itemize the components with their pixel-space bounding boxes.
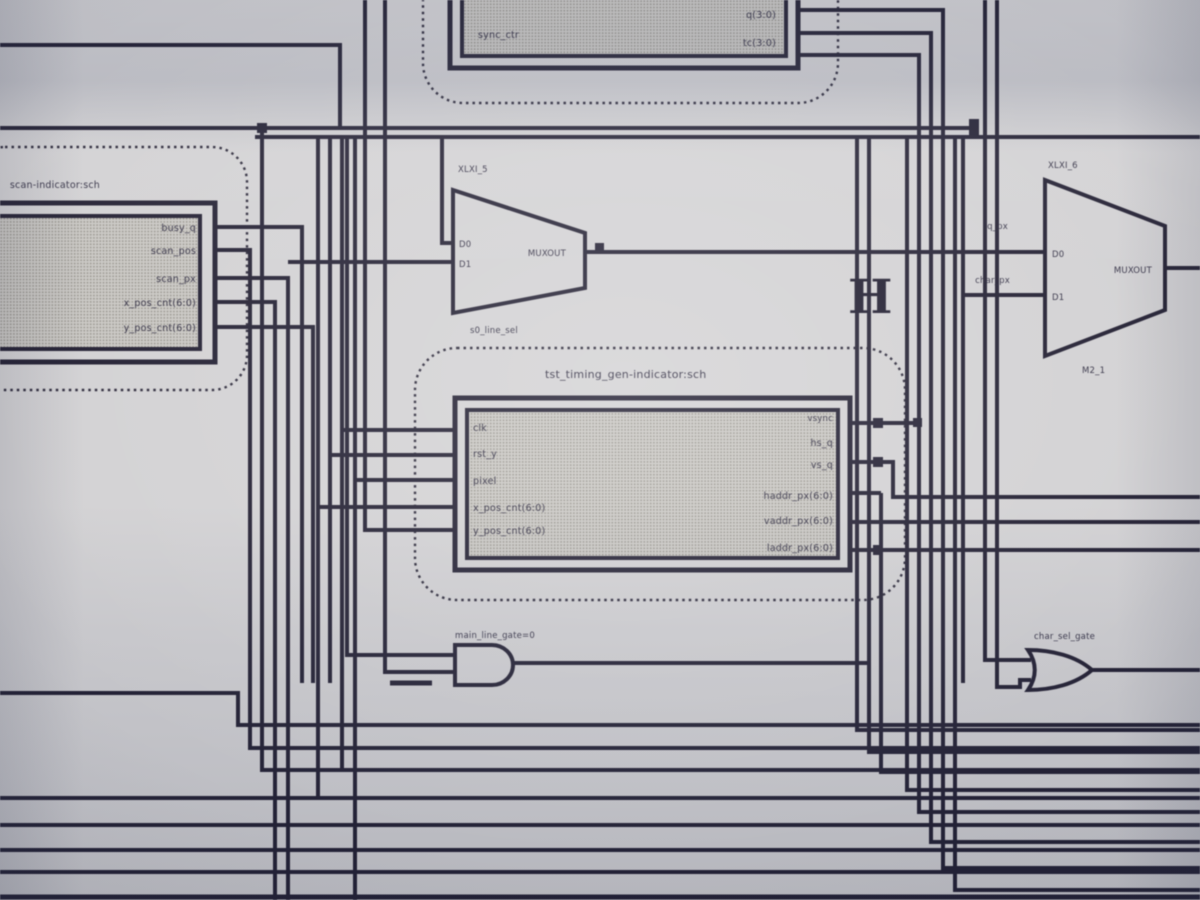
- junction-dot: [913, 418, 922, 427]
- bus-tap-nub: [969, 119, 979, 137]
- wire: [850, 462, 1200, 497]
- top-block-port-label: q(3:0): [746, 10, 776, 21]
- wire: [907, 137, 1200, 790]
- junction-dot: [873, 457, 883, 467]
- junction-dot: [873, 545, 883, 555]
- wire: [985, 0, 1031, 660]
- or-gate-symbol: [1028, 650, 1092, 690]
- bus-tap-nub: [595, 243, 604, 254]
- and-gate-symbol: [455, 645, 513, 685]
- block-body: [462, 0, 786, 56]
- center-block-port-label: laddr_px(6:0): [767, 543, 833, 554]
- center-block-port-label: vsync: [807, 414, 833, 424]
- top-block-port-label: tc(3:0): [743, 38, 776, 49]
- left-block-port-label: busy_q: [161, 223, 196, 234]
- junction-dot: [873, 418, 883, 428]
- mux-a-d0-label: D0: [459, 240, 471, 250]
- center-block-port-label: vaddr_px(6:0): [764, 516, 833, 527]
- left-block-port-label: scan_pos: [151, 246, 196, 257]
- mux-b-type-label: M2_1: [1082, 366, 1105, 376]
- wire: [0, 45, 340, 128]
- mux-b-out-label: MUXOUT: [1114, 266, 1153, 276]
- mux-b: XLXI_6 D0 D1 MUXOUT M2_1 q_px char_px: [975, 161, 1165, 376]
- mux-a: XLXI_5 D0 D1 MUXOUT s0_line_sel: [453, 165, 585, 336]
- left-block-port-label: y_pos_cnt(6:0): [124, 323, 196, 334]
- wire: [0, 693, 1200, 725]
- center-block-port-label: hs_q: [810, 438, 833, 449]
- and-gate-net-label: main_line_gate=0: [455, 631, 535, 641]
- center-block-port-label: rst_y: [473, 449, 497, 460]
- mux-a-instance-label: XLXI_5: [458, 165, 488, 175]
- top-counter-block: sync_ctr q(3:0) tc(3:0): [450, 0, 798, 68]
- mux-b-instance-label: XLXI_6: [1048, 161, 1078, 171]
- center-block-title: tst_timing_gen-indicator:sch: [545, 368, 706, 381]
- photographed-schematic-page: sync_ctr q(3:0) tc(3:0) scan-indicator:s…: [0, 0, 1200, 900]
- mux-b-d0-label: D0: [1052, 250, 1064, 260]
- center-block-port-label: y_pos_cnt(6:0): [473, 526, 545, 537]
- center-block-port-label: pixel: [473, 476, 496, 487]
- left-block-port-label: x_pos_cnt(6:0): [124, 298, 196, 309]
- wire: [997, 0, 1031, 687]
- mux-a-type-label: s0_line_sel: [470, 326, 518, 336]
- center-block-port-label: haddr_px(6:0): [763, 491, 833, 502]
- and-gate: main_line_gate=0: [455, 631, 535, 685]
- center-block-port-label: clk: [473, 423, 487, 434]
- or-gate: char_sel_gate: [1028, 632, 1095, 690]
- wire: [931, 33, 1200, 842]
- mux-b-net0-label: q_px: [987, 222, 1008, 232]
- center-timing-block: tst_timing_gen-indicator:sch clk rst_y p…: [455, 368, 850, 570]
- left-block-title: scan-indicator:sch: [10, 180, 100, 191]
- or-gate-net-label: char_sel_gate: [1034, 632, 1095, 642]
- junction-dot: [257, 123, 267, 133]
- wire: [215, 302, 275, 900]
- mux-a-d1-label: D1: [459, 260, 471, 270]
- wire: [365, 0, 455, 530]
- schematic-drawing: sync_ctr q(3:0) tc(3:0) scan-indicator:s…: [0, 0, 1200, 900]
- sheet-tag-label: H: [848, 270, 892, 325]
- left-block-port-label: scan_px: [156, 274, 196, 285]
- center-block-port-label: x_pos_cnt(6:0): [473, 503, 545, 514]
- center-block-port-label: vs_q: [811, 460, 833, 471]
- top-block-left-label: sync_ctr: [478, 30, 519, 41]
- mux-b-d1-label: D1: [1052, 293, 1064, 303]
- wire: [385, 0, 455, 672]
- mux-a-out-label: MUXOUT: [528, 249, 567, 259]
- left-scan-block: scan-indicator:sch busy_q scan_pos scan_…: [0, 180, 215, 362]
- mux-b-net1-label: char_px: [975, 276, 1010, 286]
